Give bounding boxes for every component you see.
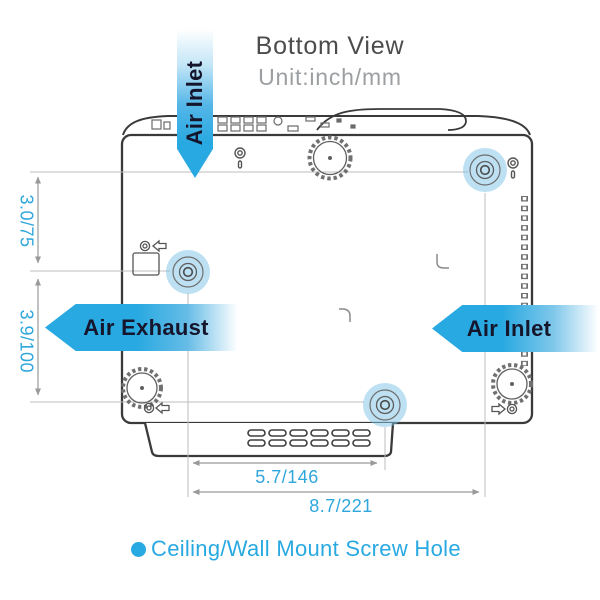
screw-hole-dot-icon xyxy=(131,542,146,557)
legend: Ceiling/Wall Mount Screw Hole xyxy=(131,536,461,562)
air-exhaust-arrow-banner: Air Exhaust xyxy=(45,304,237,351)
screw-hole-highlight xyxy=(166,250,210,294)
screw-hole-highlight xyxy=(363,383,407,427)
air-inlet-right-label: Air Inlet xyxy=(467,316,552,342)
dimension-left-lower: 3.9/100 xyxy=(16,310,37,368)
page-title: Bottom View xyxy=(225,32,435,61)
dimension-left-upper: 3.0/75 xyxy=(16,195,37,247)
screw-hole-highlight xyxy=(463,148,507,192)
air-exhaust-label: Air Exhaust xyxy=(83,315,209,341)
air-inlet-top-label: Air Inlet xyxy=(182,61,208,146)
dimension-bottom-inner: 5.7/146 xyxy=(237,467,337,488)
dimension-bottom-outer: 8.7/221 xyxy=(291,496,391,517)
unit-note: Unit:inch/mm xyxy=(225,64,435,91)
air-inlet-top-arrow-banner: Air Inlet xyxy=(177,16,213,178)
title-block: Bottom View Unit:inch/mm xyxy=(225,32,435,91)
air-inlet-right-arrow-banner: Air Inlet xyxy=(432,305,600,352)
bottom-view-diagram: Bottom View Unit:inch/mm Air Inlet Air E… xyxy=(0,0,600,600)
legend-label: Ceiling/Wall Mount Screw Hole xyxy=(151,536,461,562)
